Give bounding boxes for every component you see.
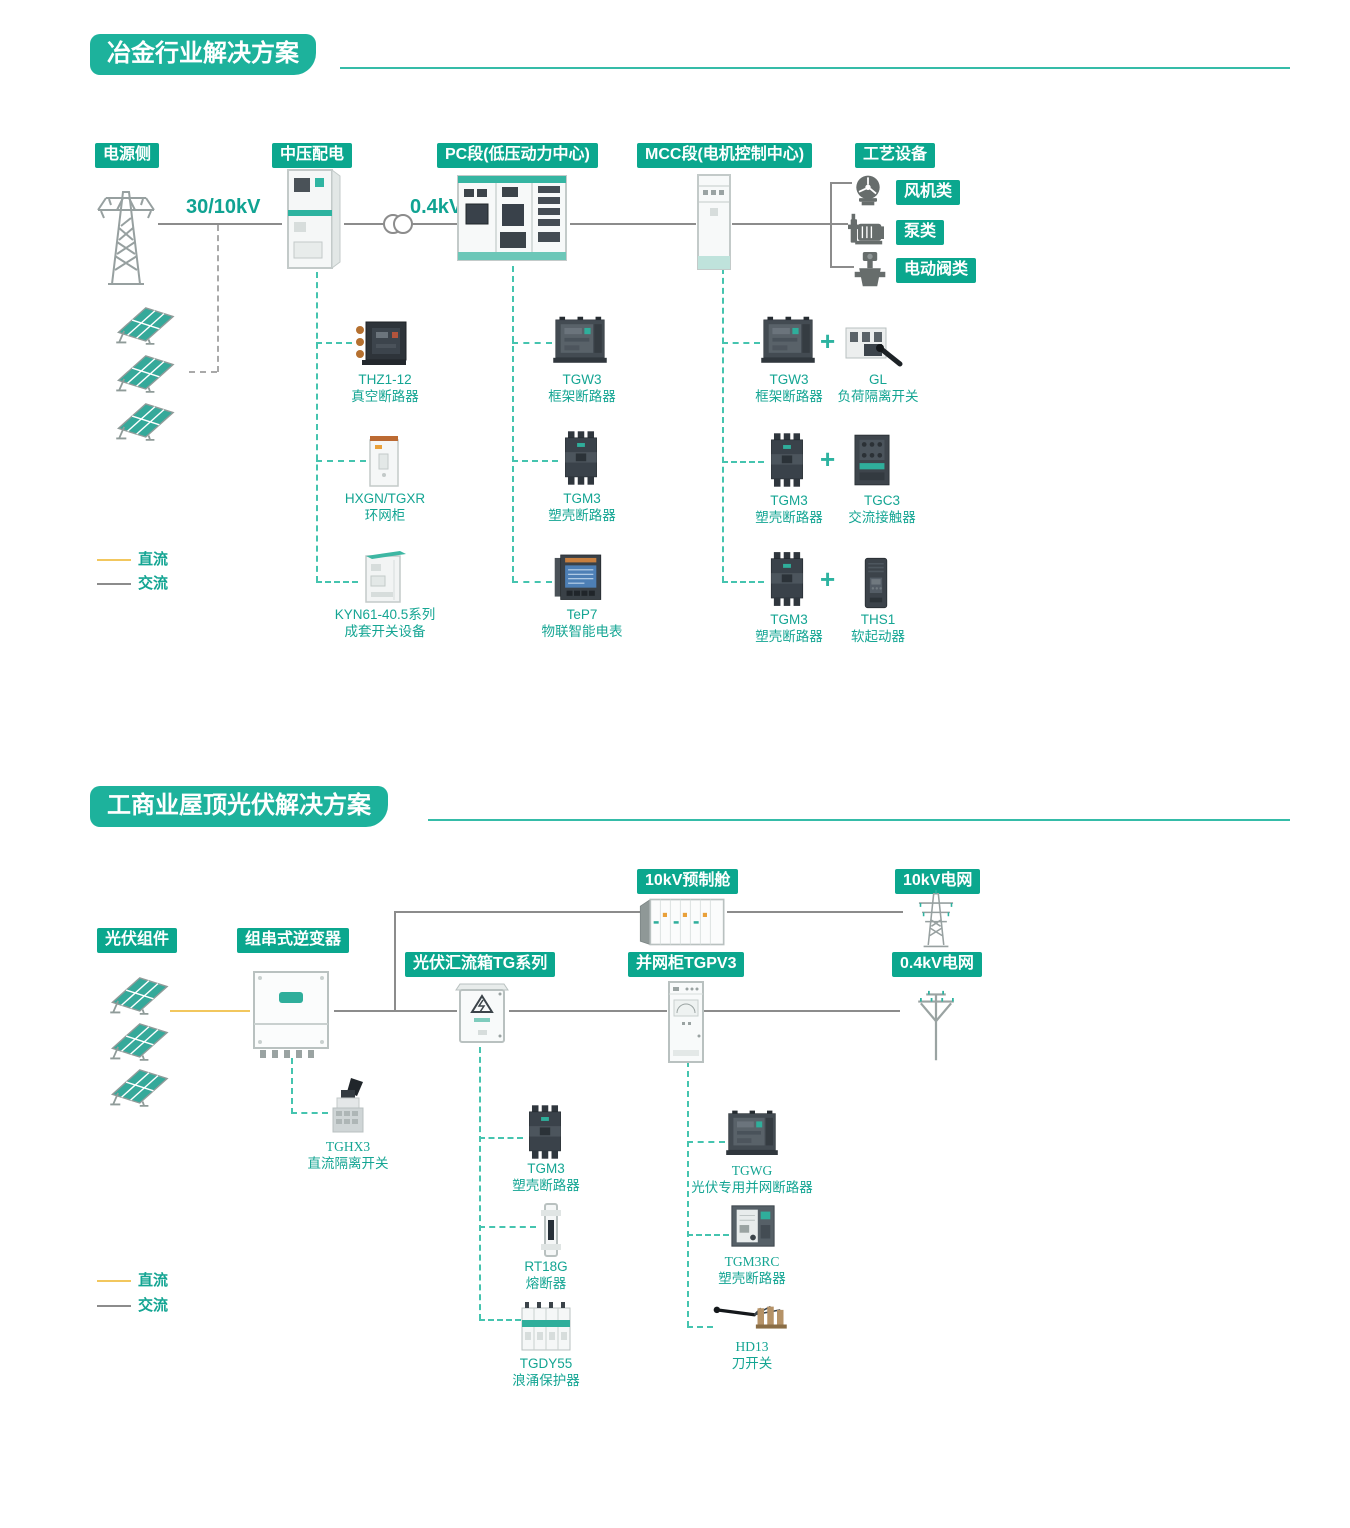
- grid-tower-icon: [910, 886, 962, 948]
- product-name: TGWG: [672, 1162, 832, 1179]
- mv-drop-bus: [316, 272, 318, 582]
- valve-icon: [852, 250, 888, 290]
- switchgear-set-image: [360, 546, 406, 606]
- mcc-drop-2: [722, 461, 764, 463]
- prefab-cabin-image: [637, 893, 727, 951]
- product-label-hxgn-tgxr: HXGN/TGXR 环网柜: [325, 490, 445, 524]
- stage-pc-section: PC段(低压动力中心): [437, 143, 598, 168]
- product-label-tgc3: TGC3 交流接触器: [822, 492, 942, 526]
- mccb-image: [766, 432, 808, 488]
- load-branch-fan: [830, 182, 852, 184]
- solar-panel-icon: [104, 348, 176, 394]
- product-desc: 物联智能电表: [522, 623, 642, 640]
- product-label-tgwg: TGWG 光伏专用并网断路器: [672, 1162, 832, 1196]
- load-branch-bus: [830, 182, 832, 268]
- dc-isolator-image: [327, 1076, 367, 1134]
- combiner-drop-1: [479, 1137, 523, 1139]
- product-name: KYN61-40.5系列: [325, 606, 445, 623]
- frame-breaker-image: [552, 316, 608, 366]
- product-desc: 刀开关: [672, 1355, 832, 1372]
- stage-power-side: 电源侧: [95, 143, 159, 168]
- knife-switch-image: [712, 1300, 790, 1336]
- section2-title: 工商业屋顶光伏解决方案: [90, 786, 388, 827]
- product-label-thz1-12: THZ1-12 真空断路器: [325, 371, 445, 405]
- product-label-tghx3: TGHX3 直流隔离开关: [288, 1138, 408, 1172]
- product-name: GL: [818, 371, 938, 388]
- ac-riser-to-cabin: [394, 911, 396, 1012]
- product-desc: 浪涌保护器: [486, 1372, 606, 1389]
- solar-panel-icon: [104, 300, 176, 346]
- plus-sign: +: [820, 446, 835, 472]
- soft-starter-image: [860, 556, 892, 610]
- section1-title-rule: [340, 67, 1290, 69]
- product-desc: 塑壳断路器: [672, 1270, 832, 1287]
- product-name: TeP7: [522, 606, 642, 623]
- frame-breaker-image: [760, 316, 816, 366]
- fan-icon: [850, 172, 886, 208]
- mv-drop-3: [316, 581, 358, 583]
- product-name: TGW3: [522, 371, 642, 388]
- smart-meter-image: [550, 552, 604, 604]
- product-desc: 交流接触器: [822, 509, 942, 526]
- stage-pv-modules: 光伏组件: [97, 928, 177, 953]
- stage-grid-cabinet: 并网柜TGPV3: [628, 952, 744, 977]
- mv-cabinet-image: [282, 166, 344, 272]
- product-desc: 光伏专用并网断路器: [672, 1179, 832, 1196]
- mcc-drop-3: [722, 581, 764, 583]
- stage-process-equipment: 工艺设备: [855, 143, 935, 168]
- product-label-ths1: THS1 软起动器: [818, 611, 938, 645]
- mccb-rc-image: [728, 1202, 778, 1250]
- ac-line-cabin-to-grid: [727, 911, 903, 913]
- mcc-drop-1: [722, 342, 760, 344]
- pc-drop-bus: [512, 266, 514, 582]
- product-name: THZ1-12: [325, 371, 445, 388]
- vacuum-breaker-image: [352, 318, 410, 366]
- mv-drop-1: [316, 342, 352, 344]
- combiner-drop-bus: [479, 1047, 481, 1320]
- pv-grid-breaker-image: [725, 1110, 779, 1158]
- ac-line-tower-to-mv: [158, 223, 282, 225]
- legend-ac-label: 交流: [138, 1298, 168, 1313]
- ac-line-mcc-to-loads: [732, 223, 830, 225]
- voltage-lv: 0.4kV: [410, 196, 462, 219]
- mccb-image: [523, 1104, 567, 1160]
- stage-mv-dist: 中压配电: [272, 143, 352, 168]
- product-desc: 熔断器: [486, 1275, 606, 1292]
- load-isolator-image: [843, 322, 905, 368]
- product-label-rt18g: RT18G 熔断器: [486, 1258, 606, 1292]
- product-name: TGM3: [486, 1160, 606, 1177]
- product-desc: 直流隔离开关: [288, 1155, 408, 1172]
- legend-dc-label: 直流: [138, 1273, 168, 1288]
- product-name: TGHX3: [288, 1138, 408, 1155]
- inverter-drop-vertical: [291, 1058, 293, 1114]
- mccb-image: [560, 430, 602, 486]
- legend-ac-line: [97, 583, 131, 585]
- pv-tie-horizontal: [189, 371, 217, 373]
- section1-title: 冶金行业解决方案: [90, 34, 316, 75]
- product-label-tgm3rc: TGM3RC 塑壳断路器: [672, 1253, 832, 1287]
- pv-tie-vertical: [217, 225, 219, 372]
- product-name: THS1: [818, 611, 938, 628]
- solar-panel-icon: [98, 1016, 170, 1062]
- inverter-drop-horizontal: [291, 1112, 328, 1114]
- utility-pole-icon: [912, 982, 960, 1062]
- plus-sign: +: [820, 566, 835, 592]
- solar-panel-icon: [104, 396, 176, 442]
- ac-line-gridcab-to-pole: [704, 1010, 900, 1012]
- combiner-box-image: [454, 980, 510, 1048]
- mcc-drop-bus: [722, 268, 724, 582]
- product-name: HXGN/TGXR: [325, 490, 445, 507]
- legend-ac-label: 交流: [138, 576, 168, 591]
- product-label-tep7: TeP7 物联智能电表: [522, 606, 642, 640]
- product-desc: 软起动器: [818, 628, 938, 645]
- combiner-drop-3: [479, 1319, 521, 1321]
- mcc-cabinet-image: [694, 172, 734, 272]
- load-label-valve: 电动阀类: [896, 258, 976, 283]
- stage-inverter: 组串式逆变器: [237, 928, 349, 953]
- legend-ac-line: [97, 1305, 131, 1307]
- load-label-fan: 风机类: [896, 180, 960, 205]
- transmission-tower-icon: [86, 178, 166, 288]
- gridcab-drop-2: [687, 1234, 729, 1236]
- product-label-gl: GL 负荷隔离开关: [818, 371, 938, 405]
- product-label-tgm3: TGM3 塑壳断路器: [486, 1160, 606, 1194]
- solar-panel-icon: [98, 970, 170, 1016]
- string-inverter-image: [248, 968, 334, 1060]
- product-name: TGC3: [822, 492, 942, 509]
- pc-drop-1: [512, 342, 552, 344]
- product-name: TGM3RC: [672, 1253, 832, 1270]
- section2-title-rule: [428, 819, 1290, 821]
- product-desc: 成套开关设备: [325, 623, 445, 640]
- ring-main-cabinet-image: [366, 434, 402, 488]
- voltage-incoming: 30/10kV: [186, 196, 261, 219]
- product-name: HD13: [672, 1338, 832, 1355]
- surge-protector-image: [520, 1300, 572, 1354]
- product-name: TGM3: [522, 490, 642, 507]
- ac-line-mv-to-transformer: [344, 223, 384, 225]
- ac-contactor-image: [850, 432, 894, 488]
- combiner-drop-2: [479, 1226, 536, 1228]
- mv-drop-2: [316, 460, 366, 462]
- stage-combiner: 光伏汇流箱TG系列: [405, 952, 555, 977]
- product-label-hd13: HD13 刀开关: [672, 1338, 832, 1372]
- pc-drop-3: [512, 581, 552, 583]
- product-desc: 框架断路器: [522, 388, 642, 405]
- pump-icon: [846, 212, 886, 248]
- product-desc: 负荷隔离开关: [818, 388, 938, 405]
- stage-mcc-section: MCC段(电机控制中心): [637, 143, 812, 168]
- ac-line-transformer-to-pc: [412, 223, 460, 225]
- product-desc: 真空断路器: [325, 388, 445, 405]
- mccb-image: [766, 550, 808, 608]
- product-desc: 塑壳断路器: [486, 1177, 606, 1194]
- solutions-infographic: 冶金行业解决方案 电源侧 中压配电 PC段(低压动力中心) MCC段(电机控制中…: [0, 0, 1350, 1528]
- product-name: TGDY55: [486, 1355, 606, 1372]
- product-label-tgdy55: TGDY55 浪涌保护器: [486, 1355, 606, 1389]
- product-label-tgw3: TGW3 框架断路器: [522, 371, 642, 405]
- pc-drop-2: [512, 460, 558, 462]
- solar-panel-icon: [98, 1062, 170, 1108]
- load-label-pump: 泵类: [896, 220, 944, 245]
- gridcab-drop-3: [687, 1326, 713, 1328]
- stage-grid-04kv: 0.4kV电网: [892, 952, 982, 977]
- ac-line-pc-to-mcc: [570, 223, 696, 225]
- stage-cabin: 10kV预制舱: [637, 869, 738, 894]
- load-branch-valve: [830, 266, 854, 268]
- product-desc: 塑壳断路器: [522, 507, 642, 524]
- fuse-image: [538, 1202, 564, 1258]
- ac-line-riser-to-cabin: [394, 911, 640, 913]
- grid-cabinet-image: [665, 980, 707, 1064]
- gridcab-drop-1: [687, 1141, 725, 1143]
- product-name: RT18G: [486, 1258, 606, 1275]
- product-label-kyn61: KYN61-40.5系列 成套开关设备: [325, 606, 445, 640]
- legend-dc-line: [97, 1280, 131, 1282]
- pc-switchgear-image: [456, 170, 568, 266]
- product-desc: 环网柜: [325, 507, 445, 524]
- dc-line-panels-to-inverter: [170, 1010, 250, 1012]
- plus-sign: +: [820, 328, 835, 354]
- product-label-tgm3: TGM3 塑壳断路器: [522, 490, 642, 524]
- ac-line-combiner-to-gridcab: [509, 1010, 667, 1012]
- legend-dc-label: 直流: [138, 552, 168, 567]
- legend-dc-line: [97, 559, 131, 561]
